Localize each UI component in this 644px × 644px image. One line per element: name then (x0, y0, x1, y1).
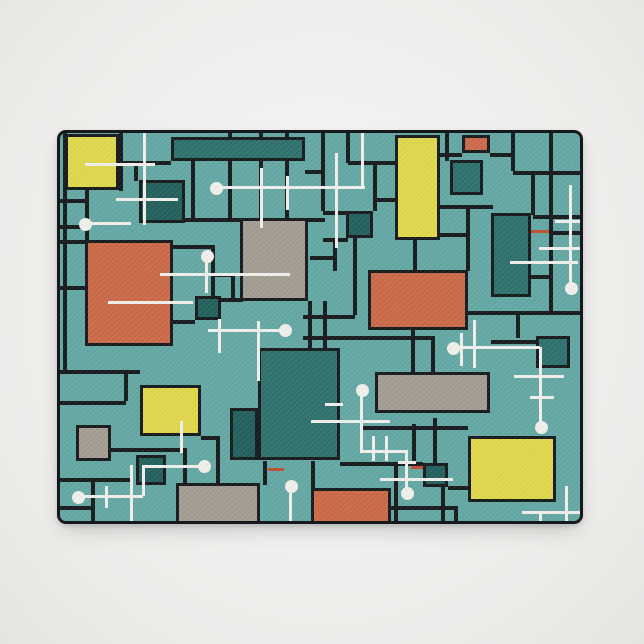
sputnik-dot (198, 460, 211, 473)
sputnik-line (240, 521, 350, 524)
sputnik-dot (79, 218, 92, 231)
sputnik-dots-layer (60, 133, 580, 521)
sputnik-dot (279, 324, 292, 337)
sputnik-dot (401, 487, 414, 500)
doormat (57, 130, 583, 524)
sputnik-dot (210, 182, 223, 195)
sputnik-dot (72, 491, 85, 504)
product-photo (0, 0, 644, 644)
sputnik-dot (285, 480, 298, 493)
sputnik-dot (356, 384, 369, 397)
sputnik-dot (535, 421, 548, 434)
sputnik-dot (565, 282, 578, 295)
sputnik-dot (201, 250, 214, 263)
sputnik-dot (447, 342, 460, 355)
